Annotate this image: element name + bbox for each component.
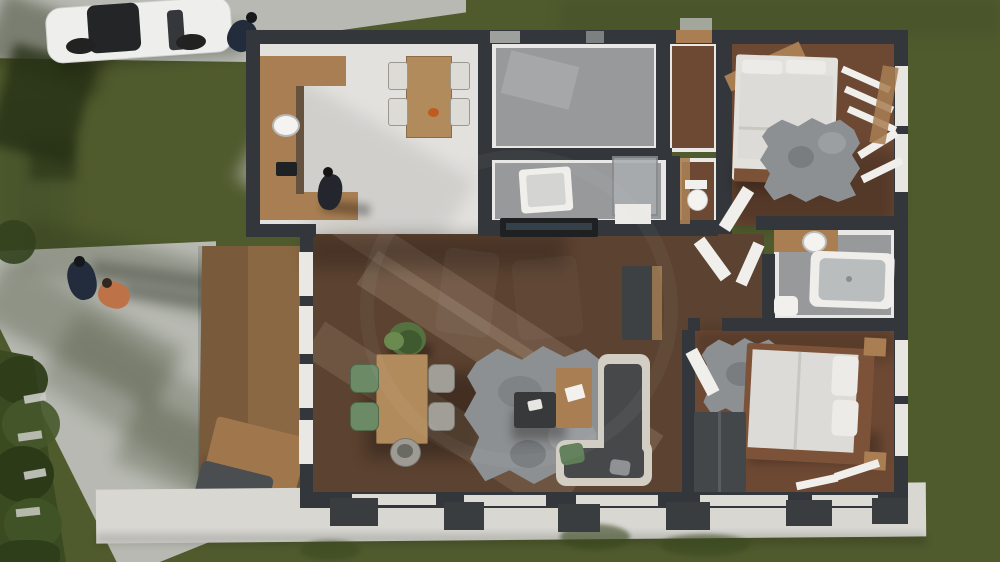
- kitchen-chair-2: [388, 98, 408, 126]
- bed1-pillow-2: [786, 59, 826, 74]
- kitchen-table-bowl: [428, 108, 439, 117]
- bathtub-inner: [818, 258, 885, 302]
- south-pillar-3: [558, 504, 600, 532]
- kitchen-chair-3: [450, 62, 470, 90]
- kitchen-chair-4: [450, 98, 470, 126]
- wc-toilet-tank: [685, 180, 707, 189]
- render-stage: [0, 0, 1000, 562]
- bedroom1-rug-shade-1: [788, 146, 814, 168]
- north-window-2: [586, 31, 604, 43]
- kitchen-person-head: [323, 167, 333, 177]
- bed2-pillow-1: [831, 355, 859, 396]
- person-tan-head: [102, 278, 112, 288]
- bedroom2-wardrobe-line: [718, 412, 721, 492]
- person-by-car-head: [246, 12, 257, 23]
- window-east-4: [895, 404, 908, 456]
- kitchen-counter-edge: [296, 86, 304, 194]
- bed2-pillow-2: [831, 399, 859, 436]
- south-door-glass-4: [700, 495, 788, 506]
- wall-hall-bedroom1: [716, 38, 732, 234]
- bed1-pillow-1: [742, 59, 782, 74]
- terrace-plants-2: [660, 534, 750, 556]
- wall-stub-bedroom2-door: [688, 318, 700, 331]
- wc-vanity: [680, 158, 690, 224]
- kitchen-chair-1: [388, 62, 408, 90]
- wall-bathroom-south: [722, 318, 908, 331]
- wall-bedroom1-south: [756, 216, 908, 230]
- north-window-1: [490, 31, 520, 43]
- front-step: [680, 18, 712, 30]
- wall-west-upper: [246, 30, 260, 236]
- bush-dark-topleft-2: [30, 140, 76, 180]
- kitchen-table: [406, 56, 452, 138]
- terrace-plants-3: [300, 540, 360, 560]
- window-west-2: [299, 306, 313, 354]
- hedge-bush-2: [2, 398, 60, 450]
- wall-utility-hall: [656, 38, 670, 160]
- bathroom-sink: [802, 231, 827, 253]
- dining-chair-green-2: [350, 402, 379, 431]
- south-pillar-5: [786, 500, 832, 526]
- wall-north: [246, 30, 908, 44]
- front-door: [676, 30, 712, 43]
- window-east-3: [895, 340, 908, 396]
- bedroom1-rug-shade-2: [818, 132, 846, 154]
- bathtub-drain: [846, 276, 852, 282]
- south-pillar-2: [444, 502, 484, 530]
- hedge-bush-5: [0, 540, 60, 562]
- person-blue-head: [74, 256, 85, 267]
- window-west-4: [299, 420, 313, 464]
- terrace-edge-shadow: [96, 534, 926, 544]
- dining-chair-round-seat: [397, 444, 413, 458]
- watermark-glyph-1: [434, 247, 500, 339]
- bathroom-toilet: [774, 296, 798, 316]
- window-west-1: [299, 252, 313, 296]
- kitchen-sink: [272, 114, 300, 137]
- watermark-glyph-2: [511, 255, 584, 341]
- south-pillar-6: [872, 498, 908, 524]
- sofa-pillow-gray: [609, 459, 631, 477]
- wc-toilet-bowl: [687, 189, 708, 211]
- bed2-nightstand-1: [864, 337, 887, 356]
- kitchen-cooktop: [276, 162, 297, 176]
- south-pillar-1: [330, 498, 378, 526]
- window-west-3: [299, 364, 313, 408]
- south-pillar-4: [666, 502, 710, 530]
- entry-hall-floor: [668, 42, 718, 152]
